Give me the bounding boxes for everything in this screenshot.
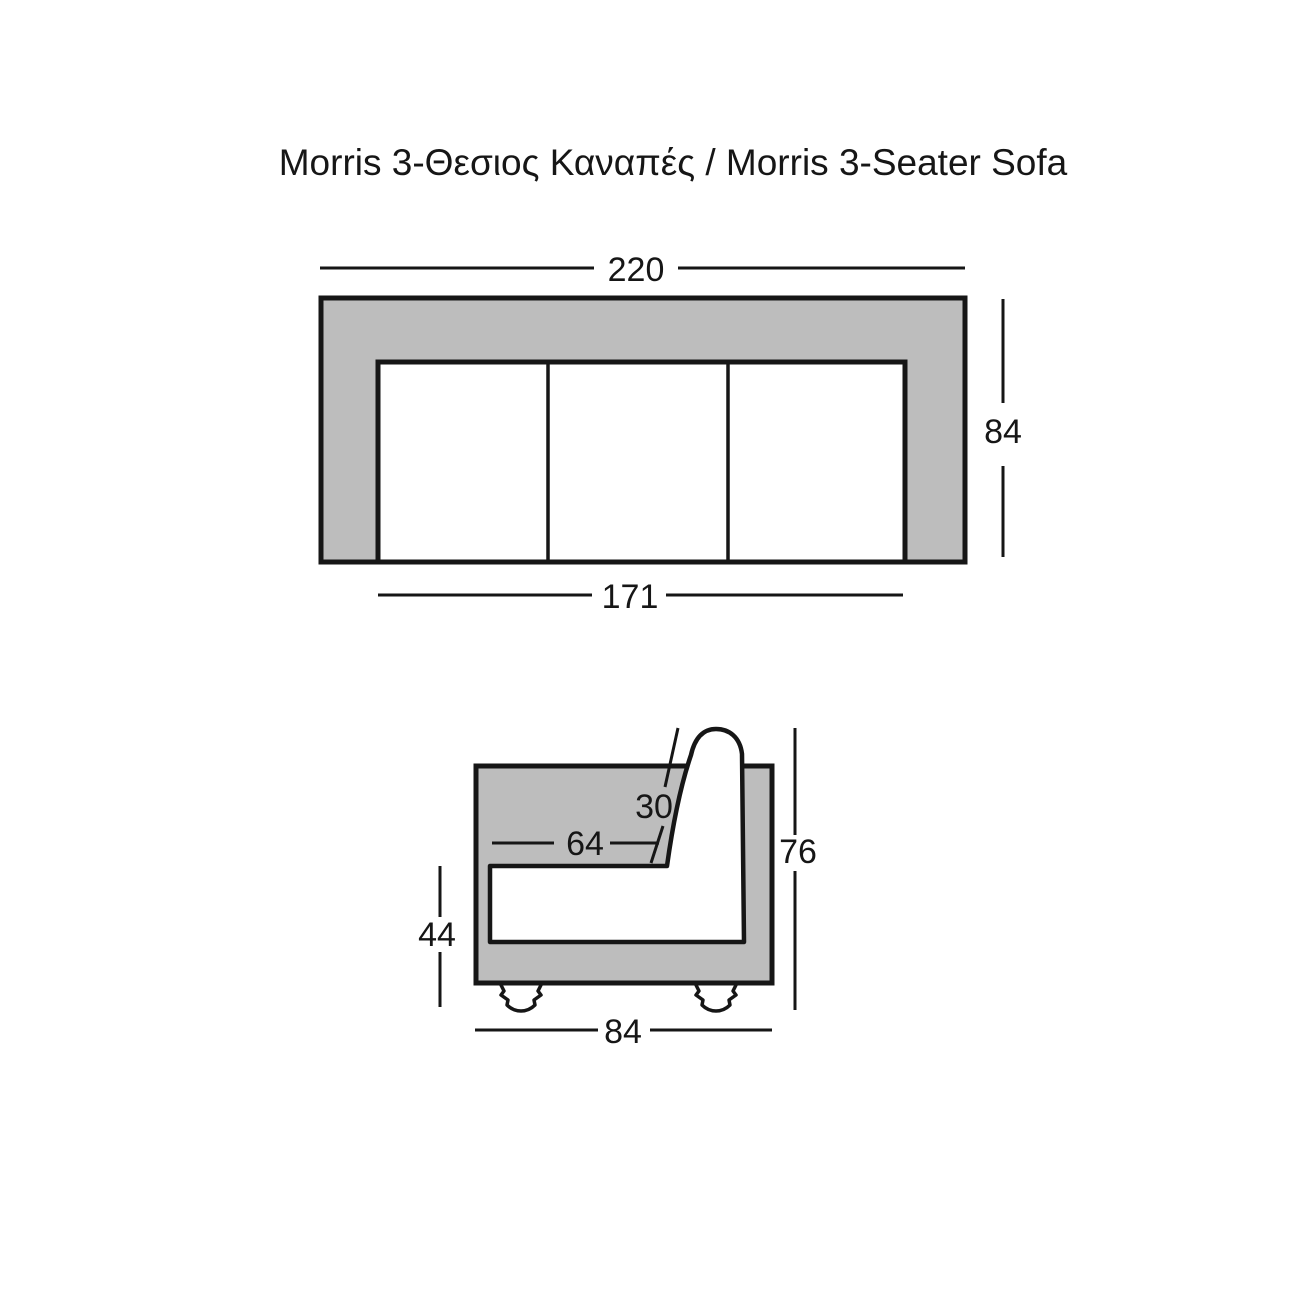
dim-seat-width: 171 [378,578,903,616]
dim-seat-width-value: 171 [602,578,659,616]
dim-side-depth-value: 84 [604,1013,642,1051]
dim-seat-height: 44 [418,866,456,1007]
top-view-diagram: 220 84 171 [320,251,1022,616]
side-view-diagram: 64 30 76 44 [418,728,817,1051]
spec-sheet: Morris 3-Θεσιος Καναπές / Morris 3-Seate… [0,0,1300,1300]
dim-seat-height-value: 44 [418,916,456,954]
dim-overall-depth: 84 [984,299,1022,557]
sofa-leg-front [500,983,542,1011]
dim-overall-height-value: 76 [779,833,817,871]
sofa-dimension-drawing: 220 84 171 [0,0,1300,1300]
top-view-seat-area [378,362,905,562]
dim-side-depth: 84 [475,1013,772,1051]
dim-overall-width-value: 220 [608,251,665,289]
dim-overall-depth-value: 84 [984,413,1022,451]
dim-backrest-thickness-value: 30 [635,788,673,826]
dim-overall-width: 220 [320,251,965,289]
sofa-leg-back [695,983,737,1011]
dim-seat-depth-value: 64 [566,825,604,863]
dim-overall-height: 76 [779,728,817,1010]
